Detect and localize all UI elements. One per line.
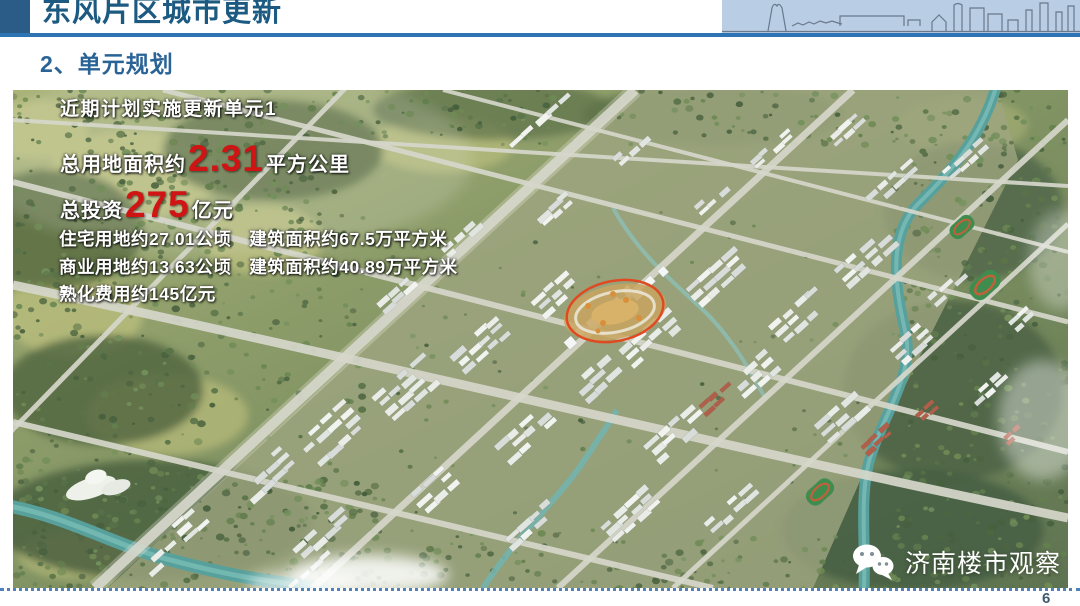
masterplan-render: 近期计划实施更新单元1 总用地面积约2.31平方公里 总投资275亿元 住宅用地…: [13, 90, 1068, 588]
stat-line-investment: 总投资275亿元: [60, 186, 234, 223]
stat-invest-unit: 亿元: [192, 200, 234, 222]
watermark: 济南楼市观察: [851, 542, 1061, 582]
city-skyline-icon: [722, 0, 1080, 33]
stat-line-maturation: 熟化费用约145亿元: [59, 286, 216, 304]
stat-line-unit: 近期计划实施更新单元1: [60, 100, 277, 119]
page-title: 东风片区城市更新: [42, 0, 282, 29]
stat-line-residential: 住宅用地约27.01公顷 建筑面积约67.5万平方米: [59, 231, 447, 249]
city-skyline-art: [722, 0, 1080, 33]
stat-area-label: 总用地面积约: [60, 154, 186, 176]
page-number: 6: [1042, 591, 1050, 606]
stat-line-area: 总用地面积约2.31平方公里: [60, 140, 350, 177]
header-divider: [0, 33, 1080, 37]
watermark-label: 济南楼市观察: [905, 544, 1061, 580]
stat-area-value: 2.31: [186, 138, 266, 179]
wechat-icon: [851, 542, 895, 582]
footer-dotted-divider: [0, 588, 1080, 591]
section-title: 2、单元规划: [40, 51, 174, 77]
stat-invest-label: 总投资: [60, 200, 123, 222]
stat-area-unit: 平方公里: [266, 154, 350, 176]
stat-invest-value: 275: [123, 184, 192, 225]
header-corner-block: [0, 0, 30, 33]
stat-line-commercial: 商业用地约13.63公顷 建筑面积约40.89万平方米: [59, 259, 458, 277]
slide: 东风片区城市更新 2、单元规划: [0, 0, 1080, 606]
